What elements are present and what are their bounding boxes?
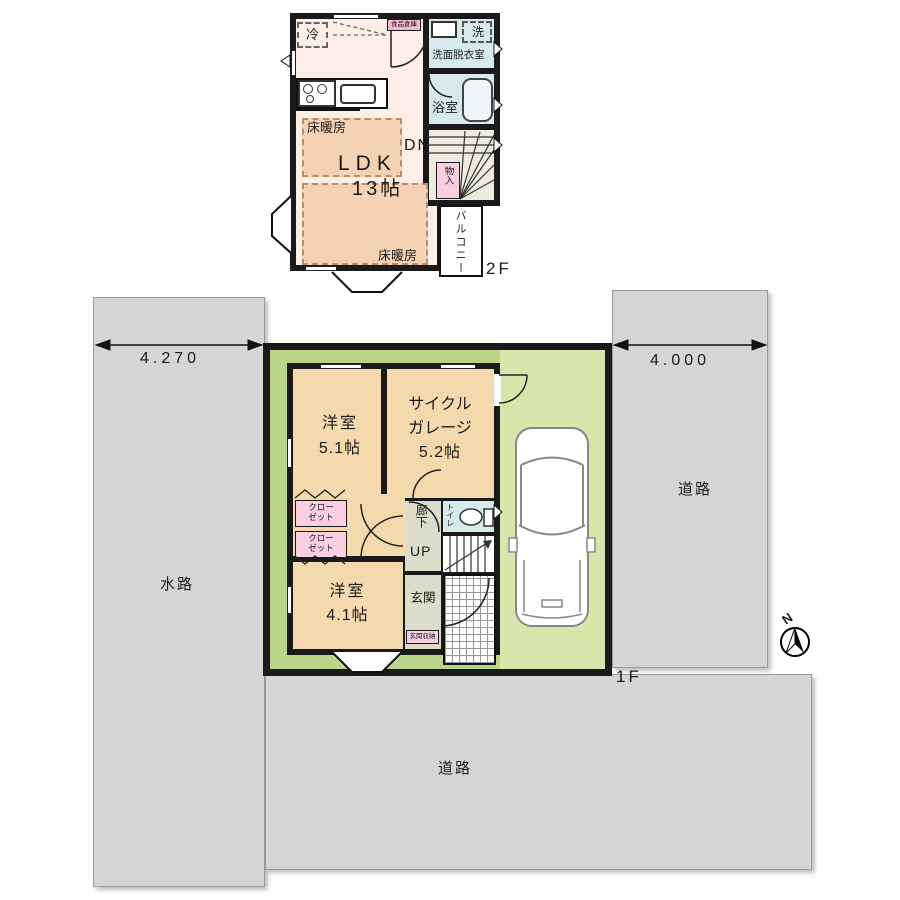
site-driveway (500, 350, 605, 669)
room-1f-west-room-2 (293, 562, 403, 649)
pantry-label: 食品倉庫 (387, 21, 421, 28)
entrance-storage-label: 玄関収納 (406, 633, 439, 640)
room1-size-label: 5.1帖 (296, 440, 384, 458)
road-right-label: 道路 (678, 482, 712, 499)
window-2f-bottom (305, 266, 337, 271)
stove-burner-3 (306, 95, 314, 103)
storage-2f-label: 物入 (442, 166, 452, 185)
dim-left-value: 4.270 (140, 350, 200, 368)
ldk-label: LDK (338, 152, 397, 175)
washer-label: 洗 (472, 26, 484, 39)
washroom-label: 洗面脱衣室 (423, 50, 494, 62)
window-1f-left-1 (287, 438, 292, 468)
balcony-label: バルコニー (454, 210, 466, 275)
north-compass (781, 628, 809, 656)
stove-unit (298, 80, 336, 107)
hallway-label: 廊下 (414, 504, 427, 528)
closet2-line1: クロー (295, 534, 347, 543)
stairs-down-label: DN (404, 137, 431, 155)
closet2-line2: ゼット (295, 544, 347, 553)
room1-label: 洋室 (300, 415, 380, 433)
ldk-size-label: 13帖 (352, 178, 403, 200)
washroom-sink (431, 21, 457, 38)
kitchen-base-bar (296, 107, 360, 111)
toilet-label: トイレ (445, 503, 454, 527)
window-1f-left-2 (287, 586, 292, 614)
window-2f-left (291, 50, 296, 76)
window-1f-room1-top (320, 364, 362, 369)
floor-plan-canvas: 水路 道路 道路 4.270 4.000 N 1F 2F LDK 13帖 床暖房… (0, 0, 900, 900)
stairs-up-label: UP (410, 544, 431, 559)
floor2-label: 2F (486, 260, 512, 279)
window-1f-garage-top (440, 364, 476, 369)
stove-burner-1 (303, 84, 313, 94)
north-label: N (780, 611, 796, 628)
kitchen-sink (340, 84, 376, 104)
entrance-label: 玄関 (406, 592, 440, 606)
bathtub (462, 78, 493, 122)
floor-heating-2-label: 床暖房 (378, 249, 417, 263)
dim-right-value: 4.000 (650, 352, 710, 370)
closet1-line1: クロー (295, 503, 347, 512)
road-bottom-strip (265, 674, 812, 870)
floor1-label: 1F (616, 668, 642, 687)
garage-size-label: 5.2帖 (397, 444, 483, 462)
road-right-strip (612, 290, 768, 668)
garage-label-line2: ガレージ (397, 420, 483, 438)
room2-size-label: 4.1帖 (296, 607, 399, 625)
fridge-label: 冷 (306, 28, 319, 42)
window-2f-top (333, 14, 379, 19)
closet1-line2: ゼット (295, 513, 347, 522)
garage-label-line1: サイクル (397, 396, 483, 414)
bath-label: 浴室 (432, 101, 458, 115)
floor-heating-1-label: 床暖房 (307, 121, 346, 135)
stove-burner-2 (317, 84, 327, 94)
stairs-1f (443, 536, 494, 572)
road-bottom-label: 道路 (438, 761, 472, 778)
room2-label: 洋室 (300, 583, 395, 601)
waterway-label: 水路 (160, 577, 194, 594)
entrance-porch-tiles (443, 574, 496, 665)
garage-door-opening (494, 374, 501, 406)
